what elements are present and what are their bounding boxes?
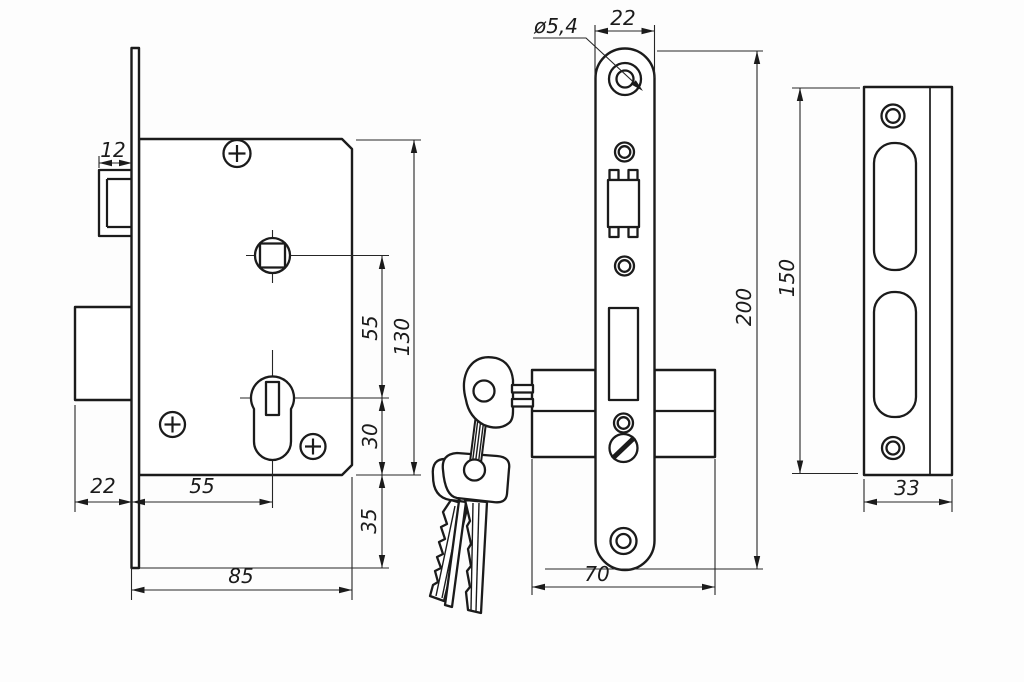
technical-drawing: 12 22 55 85 55 130 30 35 xyxy=(0,0,1024,682)
strike-bottom-screw-hole xyxy=(882,437,904,459)
dim-arrow xyxy=(595,28,608,34)
cylinder-left xyxy=(532,370,596,457)
cutout-ear xyxy=(610,170,619,180)
cutout-ear xyxy=(629,227,638,237)
screw-bottom-right-icon xyxy=(301,434,326,459)
key-slot xyxy=(266,382,279,415)
dim-label-cylinder-to-bottom: 30 xyxy=(358,423,382,448)
hole-inner xyxy=(617,534,631,548)
dim-arrow xyxy=(260,499,273,505)
dim-label-faceplate-length: 200 xyxy=(732,288,756,326)
dim-arrow xyxy=(754,556,760,569)
cylinder-pin-hole xyxy=(614,414,633,433)
dim-arrow xyxy=(379,462,385,475)
screw-top-icon xyxy=(224,140,251,167)
dim-arrow xyxy=(379,555,385,568)
key-blade-bar xyxy=(512,399,533,407)
dim-arrow xyxy=(532,584,545,590)
dim-label-faceplate-overhang: 35 xyxy=(357,508,381,533)
cutout-main xyxy=(608,180,639,227)
dim-label-faceplate-width: 22 xyxy=(610,6,635,30)
dim-arrow xyxy=(797,461,803,474)
faceplate-top-screw-hole xyxy=(609,63,641,95)
dim-arrow xyxy=(754,51,760,64)
hole-inner xyxy=(887,442,900,455)
dim-label-screw-hole-dia: ø5,4 xyxy=(533,14,578,38)
faceplate-edge xyxy=(132,48,140,568)
faceplate-bottom-screw-hole xyxy=(611,528,637,554)
dim-label-latch-throw: 12 xyxy=(100,138,125,162)
cylinder-fixing-screw-icon xyxy=(610,434,638,462)
cable-grommet-bottom xyxy=(464,460,485,481)
dim-arrow xyxy=(939,499,952,505)
dim-label-deadbolt-throw: 22 xyxy=(90,474,115,498)
dim-arrow xyxy=(379,398,385,411)
strike-plate-view: 150 33 xyxy=(775,87,952,512)
dim-arrow xyxy=(379,385,385,398)
deadbolt-cutout xyxy=(609,308,638,400)
dim-arrow xyxy=(132,587,145,593)
keys-illustration xyxy=(430,357,533,613)
dim-arrow xyxy=(379,256,385,269)
dim-arrow xyxy=(411,462,417,475)
lock-front-view: ø5,4 22 200 70 xyxy=(430,6,763,613)
pin-hole-lower xyxy=(615,257,634,276)
dim-arrow xyxy=(864,499,877,505)
strike-top-screw-hole xyxy=(882,105,905,128)
lock-drawing-canvas: 12 22 55 85 55 130 30 35 xyxy=(0,0,1024,682)
cutout-ear xyxy=(629,170,638,180)
hole-inner xyxy=(619,260,631,272)
screw-bottom-left-icon xyxy=(160,412,185,437)
strike-deadbolt-opening xyxy=(874,292,916,417)
dim-label-strike-width: 33 xyxy=(894,476,919,500)
dim-label-square-to-cylinder: 55 xyxy=(358,315,382,340)
hole-inner xyxy=(618,417,630,429)
dim-arrow xyxy=(119,499,132,505)
dim-label-strike-length: 150 xyxy=(775,259,799,297)
strike-plate-body xyxy=(864,87,952,475)
latch-cutout xyxy=(608,170,639,237)
deadbolt-side xyxy=(75,307,132,400)
dim-arrow xyxy=(75,499,88,505)
dim-label-case-height: 130 xyxy=(390,318,414,356)
cutout-ear xyxy=(610,227,619,237)
spindle-square xyxy=(260,244,285,268)
dim-arrow xyxy=(797,88,803,101)
hole-inner xyxy=(619,146,631,158)
hole-inner xyxy=(886,109,900,123)
pin-hole-upper xyxy=(615,143,634,162)
dim-arrow xyxy=(411,140,417,153)
cable-grommet-top xyxy=(474,381,495,402)
latch-bolt-side xyxy=(99,170,132,236)
dim-label-cylinder-length: 70 xyxy=(584,562,609,586)
strike-latch-opening xyxy=(874,143,916,270)
key-blade-bar xyxy=(512,385,533,393)
dim-label-backset: 55 xyxy=(189,474,214,498)
dim-arrow xyxy=(642,28,655,34)
dim-arrow xyxy=(339,587,352,593)
dim-arrow xyxy=(702,584,715,590)
lock-side-view: 12 22 55 85 55 130 30 35 xyxy=(75,48,421,600)
dim-label-case-depth: 85 xyxy=(228,564,253,588)
dim-arrow xyxy=(379,475,385,488)
cylinder-right xyxy=(655,370,716,457)
